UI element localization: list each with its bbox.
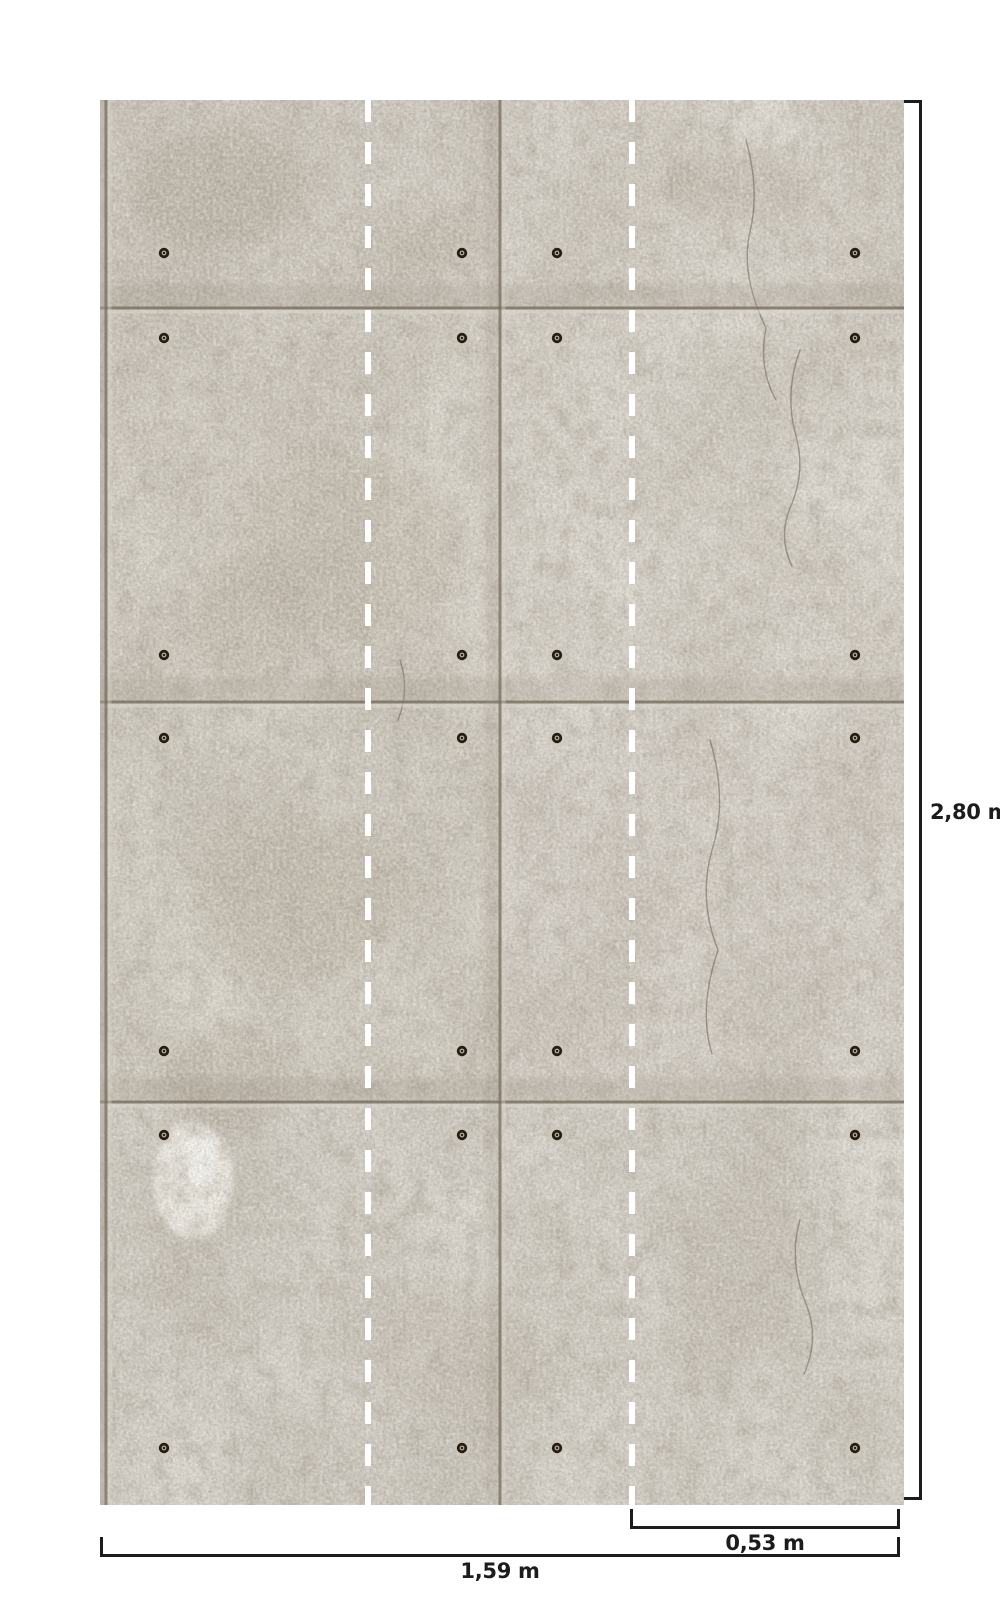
wallpaper-preview — [100, 100, 904, 1505]
strip-divider-dashed-line-2 — [629, 100, 635, 1505]
total-width-dimension-label: 1,59 m — [100, 1559, 900, 1583]
strip-width-dimension-line — [630, 1526, 900, 1529]
product-dimension-diagram: 2,80 m 0,53 m 1,59 m — [0, 0, 1000, 1606]
strip-width-dimension-label: 0,53 m — [630, 1531, 900, 1555]
height-dimension-tick-top — [904, 100, 922, 103]
strip-divider-dashed-line-1 — [365, 100, 371, 1505]
height-dimension-label: 2,80 m — [930, 800, 1000, 824]
height-dimension-line — [919, 100, 922, 1500]
height-dimension-tick-bottom — [904, 1497, 922, 1500]
concrete-wallpaper-texture — [100, 100, 904, 1505]
total-width-dimension-line — [100, 1554, 900, 1557]
